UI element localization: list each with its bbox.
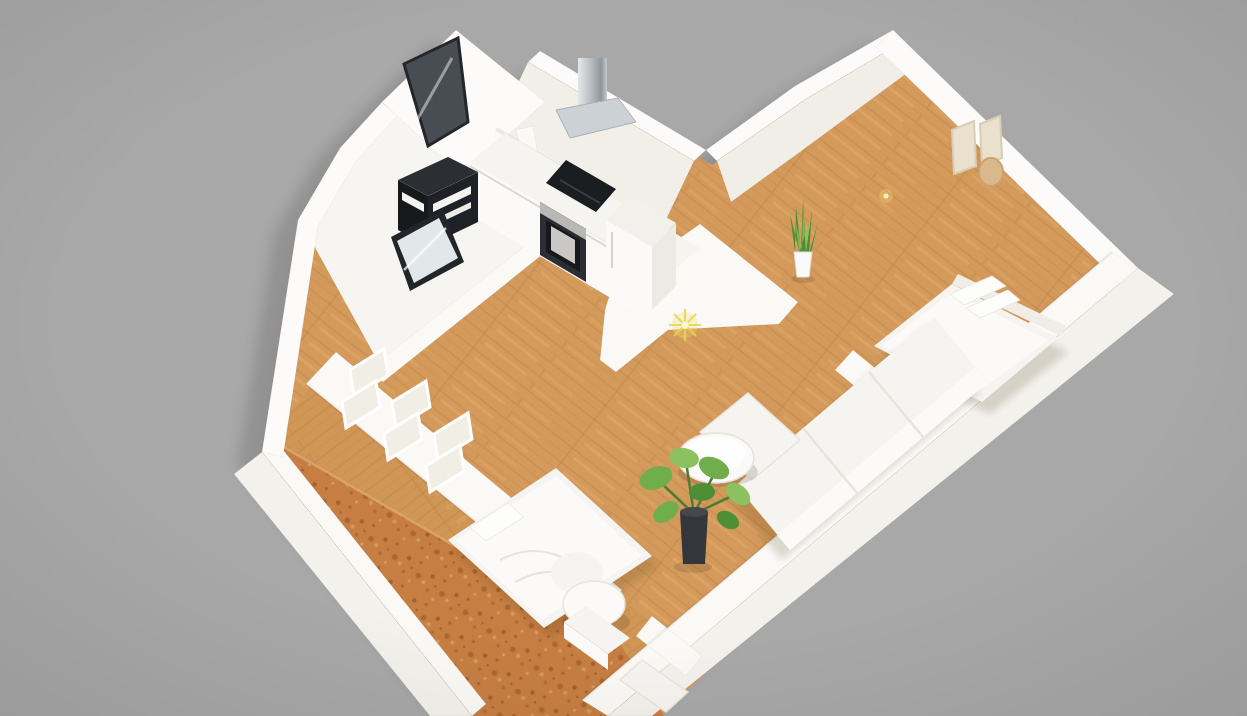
vignette [0, 0, 1247, 716]
screenshot-root [0, 0, 1247, 716]
floorplan-render [0, 0, 1247, 716]
